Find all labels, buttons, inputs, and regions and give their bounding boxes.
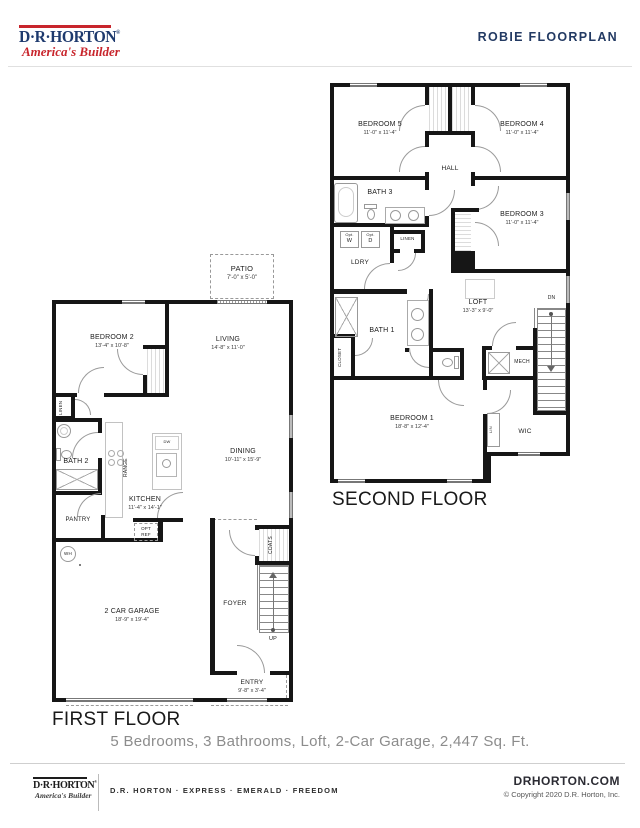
room-label-bath2: BATH 2 [54, 458, 98, 466]
label-opt-ref-1: OPT [134, 526, 158, 531]
plan-summary: 5 Bedrooms, 3 Bathrooms, Loft, 2-Car Gar… [0, 733, 640, 750]
room-label-loft: LOFT [436, 299, 520, 307]
opt-dryer-prefix: Opt. [361, 233, 380, 238]
sink-icon [390, 210, 401, 221]
room-label-dining: DINING [200, 448, 286, 456]
footer-website: DRHORTON.COM [514, 774, 620, 788]
label-range: RANGE [124, 448, 133, 488]
stairs-arrow-line [551, 315, 552, 367]
room-dims-entry: 9'-8" x 3'-4" [214, 688, 290, 694]
loft-furniture [465, 279, 495, 299]
room-label-entry: ENTRY [214, 679, 290, 686]
room-label-pantry: PANTRY [54, 517, 102, 524]
header-divider [8, 66, 632, 67]
room-dims-bedroom2: 13'-4" x 10'-8" [68, 343, 156, 349]
room-label-bath1: BATH 1 [360, 327, 404, 335]
first-floor-plan: PATIO 7'-0" x 5'-0" [52, 300, 293, 702]
room-dims-bedroom5: 11'-0" x 11'-4" [338, 130, 422, 136]
room-label-bedroom4: BEDROOM 4 [478, 121, 566, 129]
room-label-coats: COATS [269, 529, 278, 561]
shower-icon [56, 469, 98, 490]
room-dims-loft: 13'-3" x 9'-0" [436, 308, 520, 314]
room-label-linen: LINEN [390, 236, 425, 241]
room-label-closet: CLOSET [337, 339, 346, 375]
header-logo: D·R·HORTON® America's Builder [0, 0, 320, 60]
room-dims-patio: 7'-0" x 5'-0" [211, 275, 273, 282]
footer-logo-tagline: America's Builder [35, 791, 91, 800]
label-wh: WH [60, 551, 76, 556]
burner-icon [108, 459, 115, 466]
sink-icon [408, 210, 419, 221]
stairs-arrow-down [547, 366, 555, 372]
label-up: UP [257, 636, 289, 642]
room-dims-dining: 10'-11" x 15'-9" [200, 457, 286, 463]
footer-copyright: © Copyright 2020 D.R. Horton, Inc. [504, 790, 620, 799]
page-title: ROBIE FLOORPLAN [478, 30, 618, 44]
room-label-bath3: BATH 3 [338, 189, 422, 197]
footer-brands-line: D.R. HORTON · EXPRESS · EMERALD · FREEDO… [110, 786, 339, 795]
sink-icon [411, 308, 424, 321]
room-dims-garage: 18'-9" x 19'-4" [80, 617, 184, 623]
room-label-lin: LIN [489, 416, 498, 444]
room-label-foyer: FOYER [212, 600, 258, 607]
shower-icon [335, 297, 358, 337]
burner-icon [117, 450, 124, 457]
room-label-hall: HALL [426, 165, 474, 172]
footer-registered-mark: ® [94, 779, 96, 784]
room-label-bedroom3: BEDROOM 3 [478, 211, 566, 219]
room-label-living: LIVING [184, 336, 272, 344]
room-label-kitchen: KITCHEN [102, 496, 188, 504]
burner-icon [108, 450, 115, 457]
room-dims-bedroom4: 11'-0" x 11'-4" [478, 130, 566, 136]
patio-outline: PATIO 7'-0" x 5'-0" [210, 254, 274, 299]
toilet-icon [454, 356, 459, 369]
room-label-garage: 2 CAR GARAGE [80, 608, 184, 616]
registered-mark: ® [116, 30, 120, 36]
room-label-bedroom2: BEDROOM 2 [68, 334, 156, 342]
label-opt-ref-2: REF [134, 532, 158, 537]
room-label-wic: WIC [501, 428, 549, 435]
label-dn: DN [537, 296, 566, 302]
sink-icon [411, 328, 424, 341]
room-label-bedroom5: BEDROOM 5 [338, 121, 422, 129]
floorplan-page: D·R·HORTON® America's Builder ROBIE FLOO… [0, 0, 640, 828]
mech-unit-icon [488, 352, 510, 374]
room-dims-bedroom1: 18'-8" x 12'-4" [368, 424, 456, 430]
second-floor-plan: BEDROOM 5 11'-0" x 11'-4" BEDROOM 4 11'-… [330, 83, 570, 483]
opt-washer-letter: W [340, 238, 359, 244]
footer-vertical-divider [98, 774, 99, 811]
stairs-arrow-up [269, 572, 277, 578]
room-label-mech: MECH [508, 360, 536, 366]
footer-divider [10, 763, 625, 764]
room-dims-kitchen: 11'-4" x 14'-1" [102, 505, 188, 511]
first-floor-title: FIRST FLOOR [52, 709, 181, 731]
logo-tagline: America's Builder [22, 44, 120, 60]
room-label-patio: PATIO [211, 265, 273, 274]
label-dw: DW [155, 440, 179, 445]
room-dims-living: 14'-8" x 11'-0" [184, 345, 272, 351]
room-dims-bedroom3: 11'-0" x 11'-4" [478, 220, 566, 226]
opt-dryer-letter: D [361, 238, 380, 244]
footer-logo-wordmark: D·R·HORTON® [33, 779, 97, 791]
second-floor-title: SECOND FLOOR [332, 489, 488, 511]
stairs-arrow-line [273, 578, 274, 630]
room-label-ldry: LDRY [332, 259, 388, 266]
room-label-linen: LINEN [58, 398, 67, 418]
footer-logo-text: D·R·HORTON [33, 779, 94, 791]
room-label-bedroom1: BEDROOM 1 [368, 415, 456, 423]
opt-washer-prefix: Opt. [340, 233, 359, 238]
